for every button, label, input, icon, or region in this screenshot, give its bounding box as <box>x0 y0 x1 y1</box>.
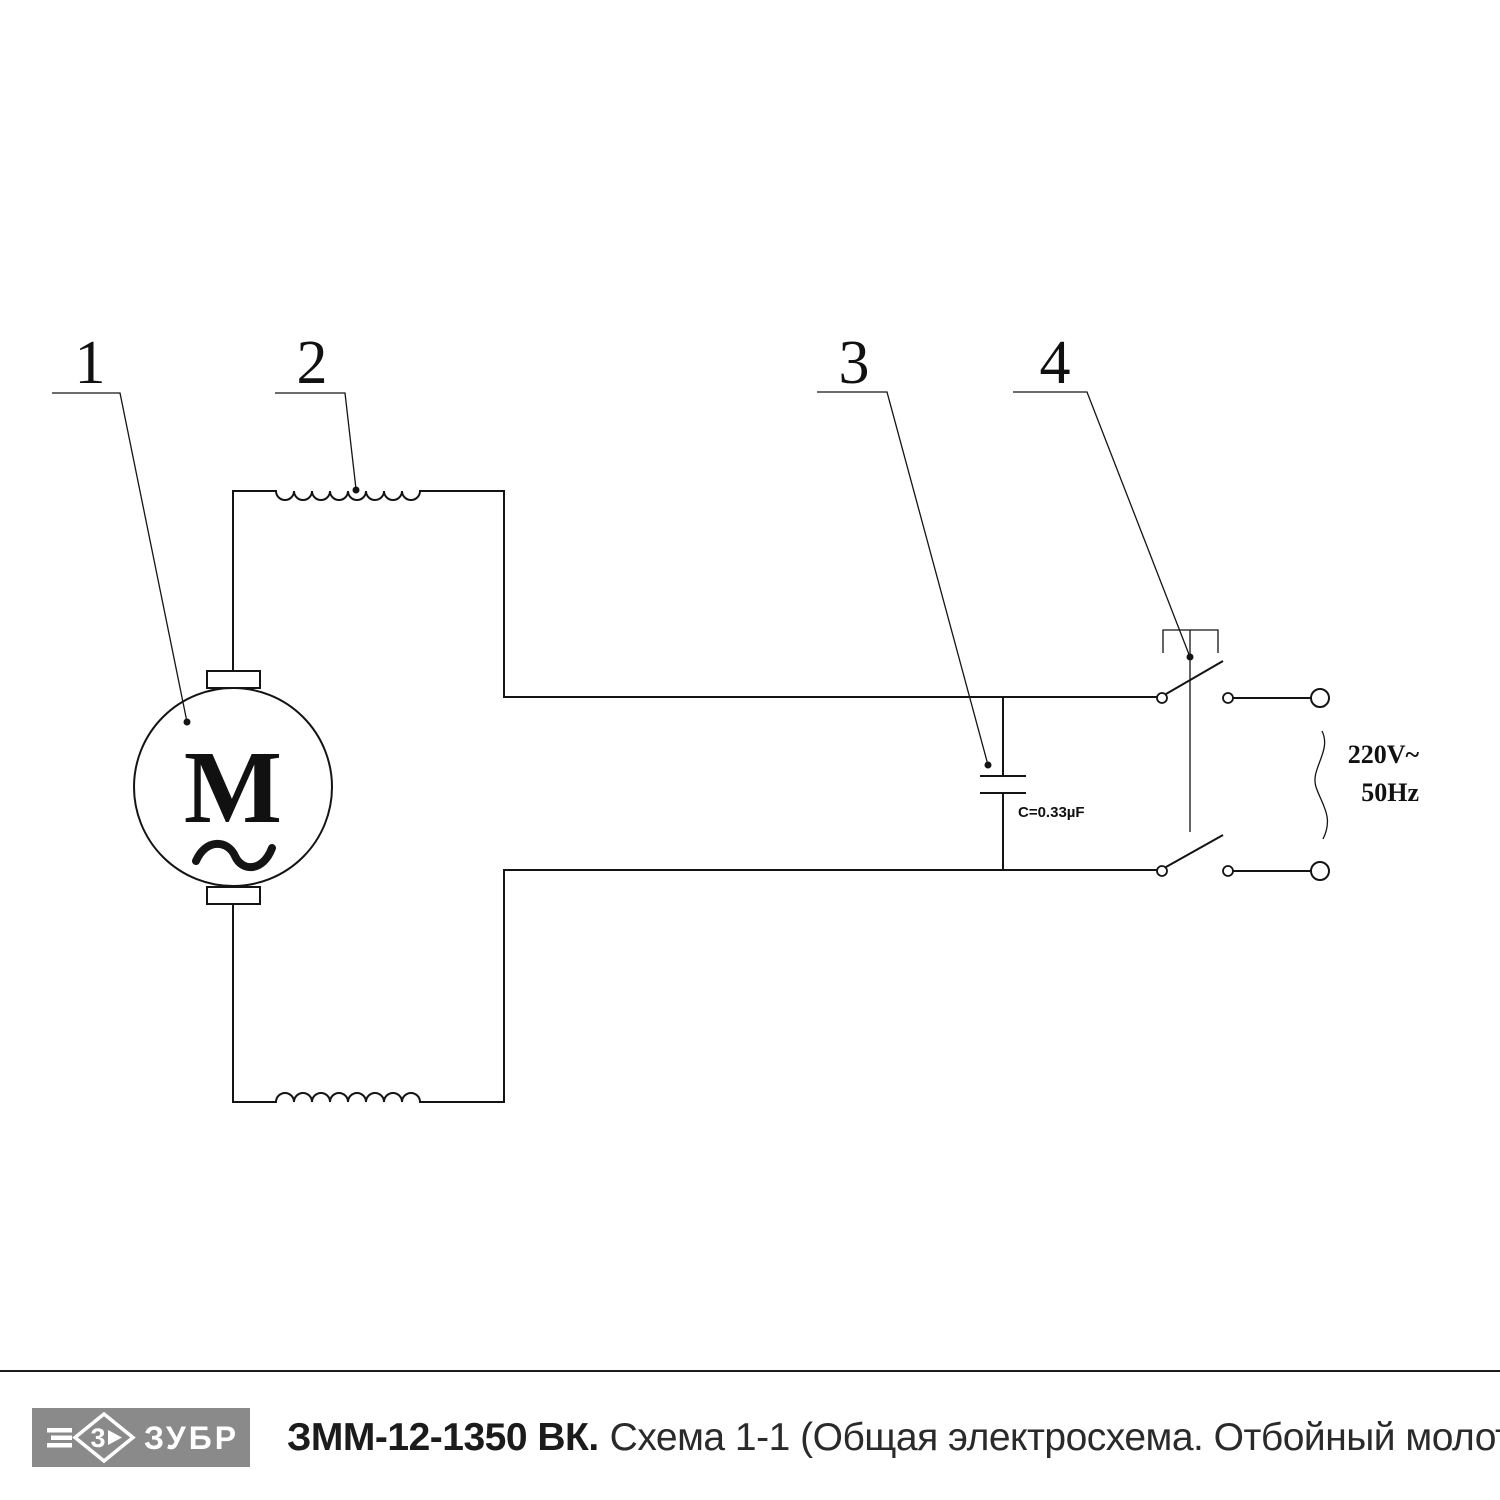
page: M C=0.33µF 2 <box>0 0 1500 1500</box>
callout-2-dot <box>353 487 360 494</box>
callout-2-leader <box>275 393 356 489</box>
callout-1-number: 1 <box>75 329 106 397</box>
capacitor-value-label: C=0.33µF <box>1018 804 1085 821</box>
supply-terminal-top <box>1311 689 1329 707</box>
switch-contact-top-left <box>1157 693 1167 703</box>
drawing-subtitle: Схема 1-1 (Общая электросхема. Отбойный … <box>610 1416 1500 1460</box>
switch-contact-top-right <box>1223 693 1233 703</box>
callout-1-leader <box>52 393 187 722</box>
callout-3-number: 3 <box>839 329 870 397</box>
top-field-coil-wire <box>233 491 1157 697</box>
model-number: ЗММ-12-1350 ВК. <box>287 1416 599 1460</box>
supply-source: 220V~ 50Hz <box>1315 731 1420 839</box>
motor-letter: M <box>184 730 282 845</box>
capacitor-symbol: C=0.33µF <box>980 697 1085 870</box>
switch-symbol <box>1157 630 1329 880</box>
callout-4-number: 4 <box>1040 329 1071 397</box>
footer: 3 ЗУБР ЗММ-12-1350 ВК. Схема 1-1 (Общая … <box>0 1408 1500 1467</box>
motor-brush-top <box>207 671 260 688</box>
supply-brace <box>1315 731 1328 839</box>
callout-2-number: 2 <box>297 329 328 397</box>
callout-3-dot <box>985 762 992 769</box>
switch-contact-bottom-right <box>1223 866 1233 876</box>
circuit-diagram: M C=0.33µF 2 <box>0 0 1500 1370</box>
callout-4-leader <box>1013 392 1190 657</box>
callout-leaders <box>52 392 1194 769</box>
supply-frequency-label: 50Hz <box>1361 778 1419 807</box>
motor-symbol: M <box>134 671 332 904</box>
logo-brand-text: ЗУБР <box>144 1420 239 1456</box>
drawing-title: ЗММ-12-1350 ВК. Схема 1-1 (Общая электро… <box>287 1408 1500 1467</box>
switch-lever-top <box>1166 661 1223 694</box>
footer-divider <box>0 1370 1500 1372</box>
callout-1-dot <box>184 719 191 726</box>
switch-contact-bottom-left <box>1157 866 1167 876</box>
motor-brush-bottom <box>207 887 260 904</box>
switch-lever-bottom <box>1166 835 1223 867</box>
callout-4-dot <box>1187 654 1194 661</box>
callout-3-leader <box>817 392 988 765</box>
bottom-field-coil-wire <box>233 870 1157 1102</box>
zubr-logo: 3 ЗУБР <box>32 1408 250 1467</box>
logo-mark-number: 3 <box>90 1423 105 1453</box>
motor-ac-symbol <box>196 844 272 867</box>
supply-terminal-bottom <box>1311 862 1329 880</box>
supply-voltage-label: 220V~ <box>1348 740 1420 769</box>
